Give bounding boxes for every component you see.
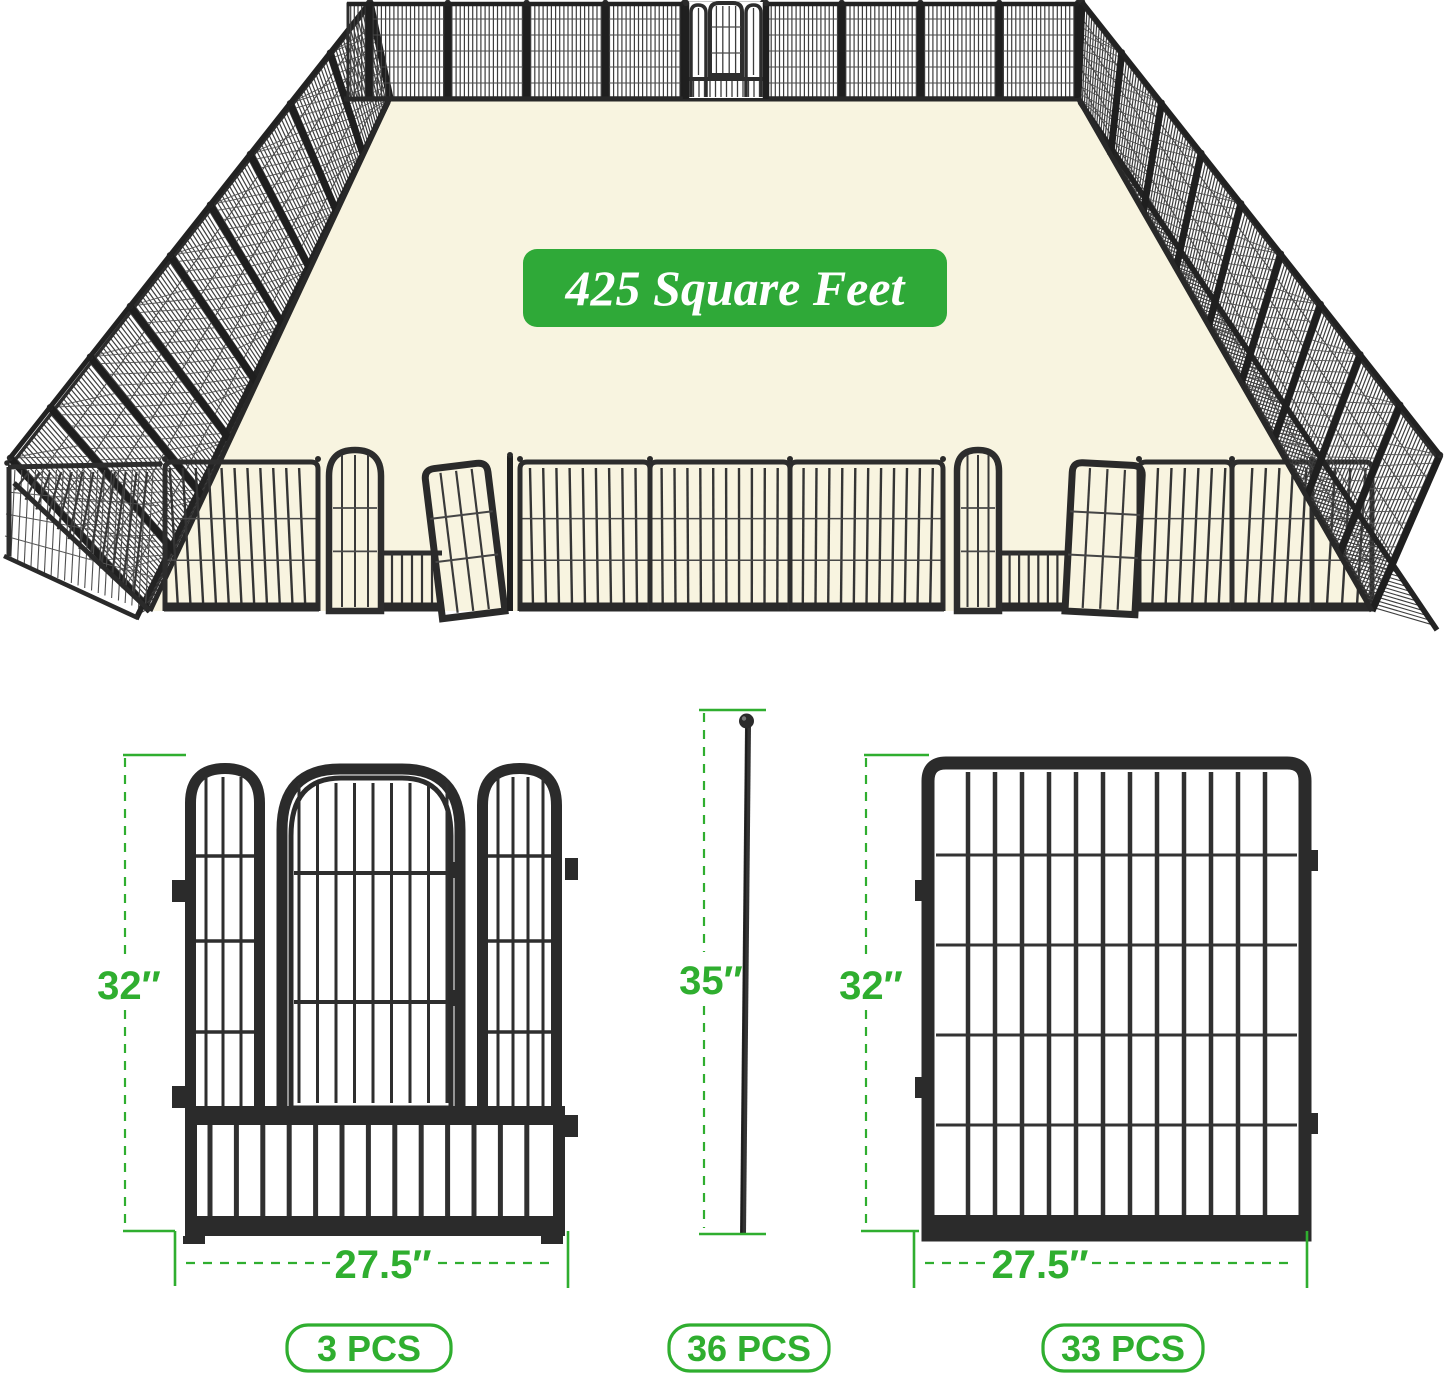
svg-text:32″: 32″ bbox=[839, 964, 903, 1008]
svg-text:35″: 35″ bbox=[679, 959, 743, 1003]
svg-text:32″: 32″ bbox=[97, 964, 161, 1008]
svg-text:27.5″: 27.5″ bbox=[334, 1243, 431, 1287]
svg-text:33 PCS: 33 PCS bbox=[1061, 1328, 1185, 1369]
svg-text:36 PCS: 36 PCS bbox=[687, 1328, 811, 1369]
svg-text:27.5″: 27.5″ bbox=[991, 1243, 1088, 1287]
svg-text:425 Square Feet: 425 Square Feet bbox=[565, 260, 907, 316]
svg-text:3 PCS: 3 PCS bbox=[317, 1328, 421, 1369]
